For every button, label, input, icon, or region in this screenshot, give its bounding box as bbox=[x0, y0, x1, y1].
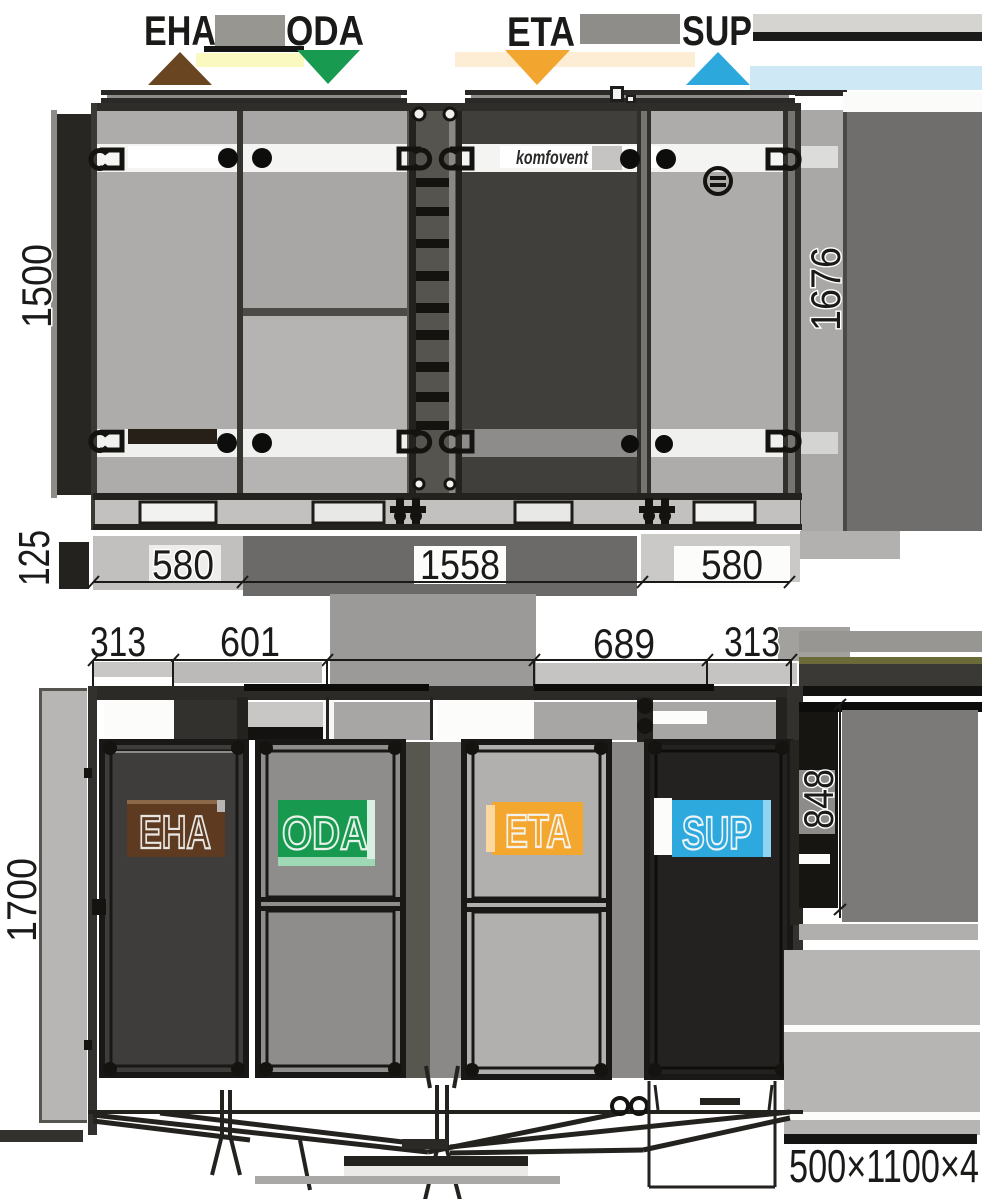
svg-text:580: 580 bbox=[701, 541, 763, 588]
svg-text:1676: 1676 bbox=[802, 247, 849, 331]
svg-text:1500: 1500 bbox=[13, 244, 60, 328]
svg-text:848: 848 bbox=[795, 769, 842, 829]
svg-text:ETA: ETA bbox=[505, 805, 571, 857]
svg-text:EHA: EHA bbox=[139, 806, 211, 858]
svg-text:komfovent: komfovent bbox=[516, 148, 588, 169]
svg-text:580: 580 bbox=[152, 541, 214, 588]
svg-text:ETA: ETA bbox=[507, 8, 575, 55]
svg-text:EHA: EHA bbox=[144, 7, 216, 54]
svg-text:1700: 1700 bbox=[0, 858, 45, 942]
svg-text:ODA: ODA bbox=[286, 7, 364, 54]
svg-text:313: 313 bbox=[724, 618, 780, 665]
svg-text:125: 125 bbox=[10, 530, 59, 586]
svg-text:601: 601 bbox=[220, 618, 280, 665]
svg-text:SUP: SUP bbox=[682, 807, 752, 859]
svg-text:500×1100×4: 500×1100×4 bbox=[789, 1140, 979, 1192]
svg-text:SUP: SUP bbox=[682, 7, 752, 54]
svg-text:ODA: ODA bbox=[282, 807, 368, 859]
svg-text:313: 313 bbox=[90, 618, 146, 665]
svg-text:1558: 1558 bbox=[420, 541, 500, 588]
